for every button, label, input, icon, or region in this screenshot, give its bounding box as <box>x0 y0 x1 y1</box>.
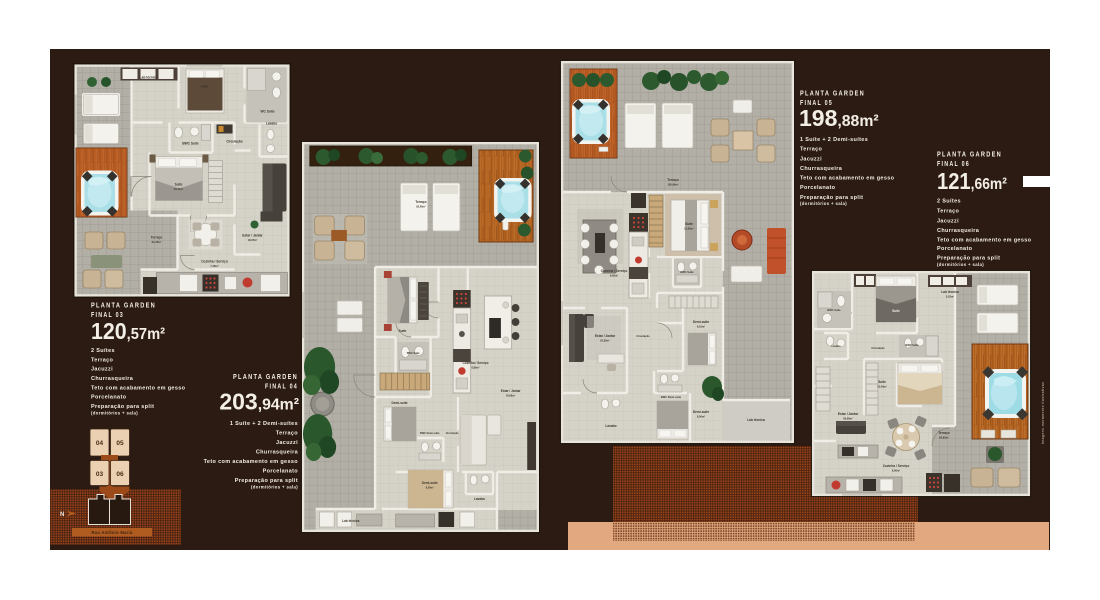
svg-text:Teto com acabamento em gesso: Teto com acabamento em gesso <box>937 238 1032 244</box>
svg-text:Circulação: Circulação <box>446 431 459 435</box>
svg-text:BWC Demi-suíte: BWC Demi-suíte <box>420 431 440 435</box>
svg-text:Estar / Jantar: Estar / Jantar <box>242 234 263 238</box>
svg-text:Preparação para split: Preparação para split <box>937 256 1000 262</box>
svg-text:13,40m²: 13,40m² <box>174 187 184 191</box>
svg-text:8,86m²: 8,86m² <box>472 365 480 369</box>
svg-text:20,85m²: 20,85m² <box>600 339 610 343</box>
svg-text:Demi-suíte: Demi-suíte <box>392 401 408 405</box>
svg-text:Estar / Jantar: Estar / Jantar <box>595 334 616 338</box>
svg-text:03: 03 <box>96 471 104 478</box>
svg-text:Lavabo: Lavabo <box>831 344 840 348</box>
svg-text:PLANTA GARDEN: PLANTA GARDEN <box>91 303 156 310</box>
svg-text:05: 05 <box>116 440 124 447</box>
svg-text:60,46m²: 60,46m² <box>152 240 162 244</box>
svg-text:9,06m²: 9,06m² <box>892 469 900 473</box>
svg-text:Churrasqueira: Churrasqueira <box>800 166 843 172</box>
svg-text:Churrasqueira: Churrasqueira <box>256 450 299 456</box>
svg-text:29,88m²: 29,88m² <box>506 393 516 397</box>
svg-text:Circulação: Circulação <box>871 346 885 350</box>
svg-text:59,08m²: 59,08m² <box>843 417 853 421</box>
svg-text:9,16m²: 9,16m² <box>697 325 705 329</box>
svg-text:15,85m²: 15,85m² <box>684 227 694 231</box>
svg-text:06: 06 <box>116 471 124 478</box>
svg-text:2 Suítes: 2 Suítes <box>91 348 115 354</box>
svg-text:Terraço: Terraço <box>151 236 163 240</box>
svg-text:92,45m²: 92,45m² <box>416 204 426 208</box>
svg-text:Lavabo: Lavabo <box>474 497 485 501</box>
svg-text:Porcelanato: Porcelanato <box>937 246 973 252</box>
svg-text:Porcelanato: Porcelanato <box>263 468 299 474</box>
svg-text:04: 04 <box>96 440 104 447</box>
svg-text:Jacuzzi: Jacuzzi <box>91 367 113 373</box>
svg-text:BWC Suíte: BWC Suíte <box>905 343 919 347</box>
svg-text:Porcelanato: Porcelanato <box>91 395 127 401</box>
svg-text:Teto com acabamento em gesso: Teto com acabamento em gesso <box>91 385 186 391</box>
svg-text:WC Suíte: WC Suíte <box>261 110 275 114</box>
svg-text:Suíte: Suíte <box>399 329 407 333</box>
svg-text:Preparação para split: Preparação para split <box>800 195 863 201</box>
svg-text:Suíte: Suíte <box>892 309 900 313</box>
svg-text:Lab técnica: Lab técnica <box>941 290 959 294</box>
svg-text:PLANTA GARDEN: PLANTA GARDEN <box>800 91 865 98</box>
svg-text:Estar / Jantar: Estar / Jantar <box>501 389 522 393</box>
svg-text:Churrasqueira: Churrasqueira <box>91 376 134 382</box>
svg-text:1 Suíte + 2 Demi-suítes: 1 Suíte + 2 Demi-suítes <box>800 137 868 143</box>
svg-text:N: N <box>60 512 64 518</box>
svg-text:Cozinha / Serviço: Cozinha / Serviço <box>601 269 628 273</box>
svg-text:Terraço: Terraço <box>91 357 114 363</box>
svg-text:8,06m²: 8,06m² <box>697 415 705 419</box>
svg-text:BWC Suíte: BWC Suíte <box>680 270 694 274</box>
svg-text:Demi-suíte: Demi-suíte <box>693 320 710 324</box>
svg-text:Cozinha / Serviço: Cozinha / Serviço <box>201 260 228 264</box>
svg-text:PLANTA GARDEN: PLANTA GARDEN <box>937 152 1002 159</box>
svg-text:100,96m²: 100,96m² <box>667 183 678 187</box>
svg-text:Demi-suíte: Demi-suíte <box>422 481 438 485</box>
svg-text:Porcelanato: Porcelanato <box>800 185 836 191</box>
svg-text:Terraço: Terraço <box>276 431 299 437</box>
svg-text:(dormitórios + sala): (dormitórios + sala) <box>91 411 138 416</box>
svg-text:Terraço: Terraço <box>800 147 823 153</box>
svg-text:Estar / Jantar: Estar / Jantar <box>838 412 859 416</box>
svg-text:(dormitórios + sala): (dormitórios + sala) <box>937 262 984 267</box>
svg-text:Jacuzzi: Jacuzzi <box>937 219 959 225</box>
svg-text:66,85m²: 66,85m² <box>939 436 949 440</box>
svg-text:Lab técnica: Lab técnica <box>140 76 158 80</box>
svg-text:Suíte: Suíte <box>685 222 693 226</box>
svg-text:Cozinha / Serviço: Cozinha / Serviço <box>463 361 489 365</box>
svg-text:FINAL 04: FINAL 04 <box>265 383 298 390</box>
svg-text:Cozinha / Serviço: Cozinha / Serviço <box>883 464 910 468</box>
svg-text:BWC Suíte: BWC Suíte <box>407 351 420 355</box>
svg-text:Suíte: Suíte <box>878 380 886 384</box>
svg-text:Teto com acabamento em gesso: Teto com acabamento em gesso <box>800 175 895 181</box>
svg-text:Lavabo: Lavabo <box>266 122 277 126</box>
svg-text:2 Suítes: 2 Suítes <box>937 199 961 205</box>
svg-text:Lab técnica: Lab técnica <box>342 519 359 523</box>
svg-text:Churrasqueira: Churrasqueira <box>937 228 980 234</box>
svg-text:Rua Antônio Maria: Rua Antônio Maria <box>91 530 133 535</box>
svg-text:Imagens meramente ilustrativas: Imagens meramente ilustrativas <box>1041 382 1045 444</box>
svg-text:Terraço: Terraço <box>667 178 679 182</box>
svg-text:Lab técnica: Lab técnica <box>747 418 765 422</box>
svg-text:8,00m²: 8,00m² <box>426 485 434 489</box>
svg-text:Terraço: Terraço <box>415 200 426 204</box>
svg-text:Circulação: Circulação <box>636 334 650 338</box>
svg-text:9,06m²: 9,06m² <box>610 274 618 278</box>
svg-text:PLANTA GARDEN: PLANTA GARDEN <box>233 374 298 381</box>
svg-text:Suíte: Suíte <box>201 85 209 89</box>
svg-text:Jacuzzi: Jacuzzi <box>276 440 298 446</box>
svg-text:Jacuzzi: Jacuzzi <box>800 156 822 162</box>
svg-text:Terraço: Terraço <box>937 209 960 215</box>
svg-text:Demi-suíte: Demi-suíte <box>693 410 710 414</box>
svg-text:Preparação para split: Preparação para split <box>91 404 154 410</box>
svg-text:Circulação: Circulação <box>226 140 242 144</box>
svg-text:(dormitórios + sala): (dormitórios + sala) <box>800 201 847 206</box>
svg-text:5,53m²: 5,53m² <box>946 295 954 299</box>
svg-text:7,46m²: 7,46m² <box>210 264 218 268</box>
svg-text:18,05m²: 18,05m² <box>248 238 258 242</box>
svg-text:Terraço: Terraço <box>938 431 950 435</box>
svg-text:1 Suíte + 2 Demi-suítes: 1 Suíte + 2 Demi-suítes <box>230 421 298 427</box>
svg-text:Teto com acabamento em gesso: Teto com acabamento em gesso <box>204 459 299 465</box>
svg-text:Suíte: Suíte <box>175 183 183 187</box>
svg-text:BWC Suíte: BWC Suíte <box>827 308 841 312</box>
svg-text:BWC Demi-suíte: BWC Demi-suíte <box>661 395 682 399</box>
svg-text:Preparação para split: Preparação para split <box>235 478 298 484</box>
svg-text:(dormitórios + sala): (dormitórios + sala) <box>251 484 298 489</box>
svg-text:13,40m²: 13,40m² <box>877 385 887 389</box>
svg-text:Lavabo: Lavabo <box>605 424 616 428</box>
svg-text:BWC Suíte: BWC Suíte <box>182 142 199 146</box>
